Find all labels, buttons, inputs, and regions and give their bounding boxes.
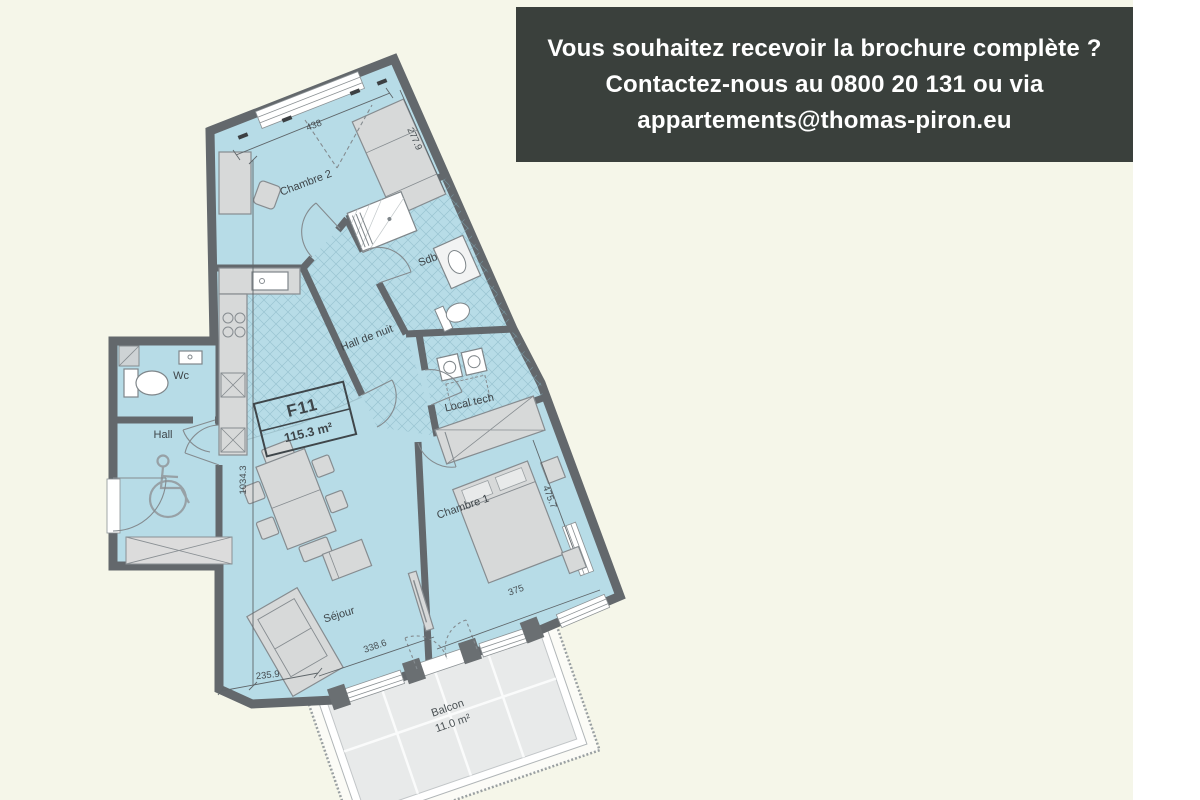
contact-banner: Vous souhaitez recevoir la brochure comp… — [516, 7, 1133, 162]
entrance-opening — [107, 479, 120, 533]
desk — [219, 152, 251, 214]
dim-total-depth: 1034.3 — [238, 465, 249, 494]
room-label-wc: Wc — [173, 370, 189, 382]
banner-line-1: Vous souhaitez recevoir la brochure comp… — [547, 31, 1101, 67]
banner-line-3: appartements@thomas-piron.eu — [637, 103, 1011, 139]
hall-closet — [126, 537, 232, 564]
page-margin — [1133, 0, 1200, 800]
room-label-hall: Hall — [154, 429, 173, 441]
flyer-page: Balcon 11.0 m² — [0, 0, 1200, 800]
banner-line-2: Contactez-nous au 0800 20 131 ou via — [605, 67, 1043, 103]
